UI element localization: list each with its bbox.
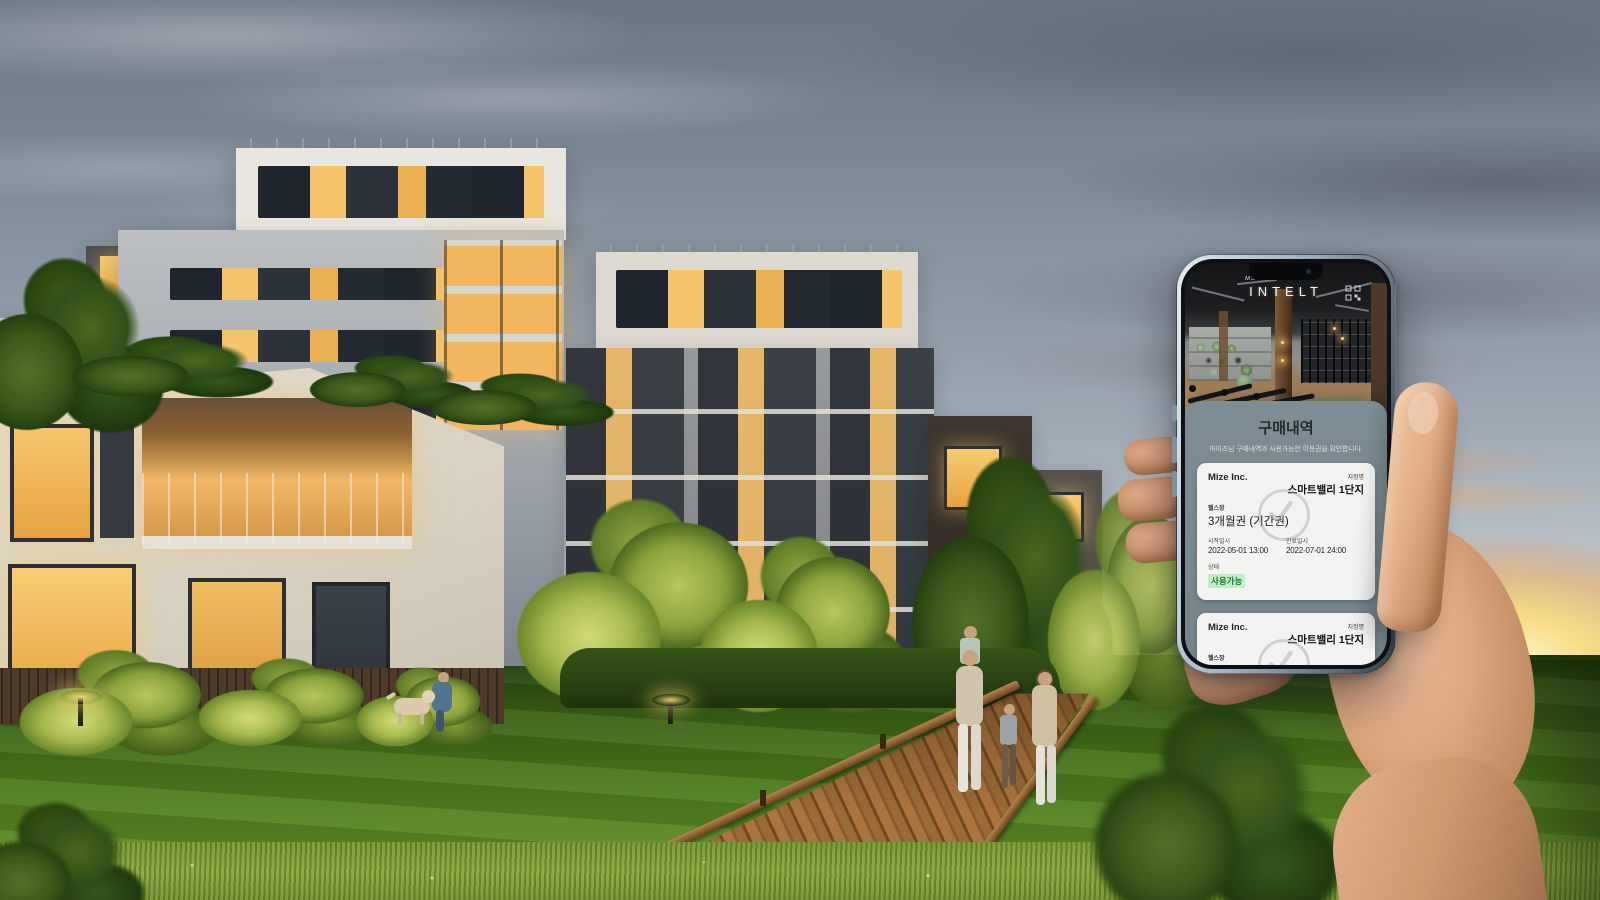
mother-leg	[1047, 745, 1056, 803]
boy-leg	[436, 710, 444, 732]
site-label: 지정명	[1288, 472, 1364, 481]
page-title: 구매내역	[1185, 417, 1387, 438]
wood-pillar	[1219, 311, 1228, 381]
dog-head	[422, 690, 435, 703]
family-group	[940, 620, 1070, 810]
pillar-light	[1281, 341, 1284, 344]
company-name: Mize Inc.	[1208, 472, 1248, 483]
father-head	[962, 650, 978, 666]
rowing-machine-wheel	[1253, 393, 1260, 400]
qr-code-icon[interactable]	[1345, 285, 1361, 301]
ticket-card-active[interactable]: Mize Inc. 지정명 스마트밸리 1단지 헬스장 3개월권 (기간권) 시…	[1197, 463, 1375, 600]
penthouse-window-band	[258, 166, 544, 218]
smartphone: MS INTELT 구매내역 마이즈님 구매내역과 사용가능한 이용권을 확인합…	[1176, 254, 1396, 674]
start-value: 2022-05-01 13:00	[1208, 546, 1286, 555]
dog-leg	[398, 713, 402, 725]
expiry-date-col: 만료일시 2022-07-01 24:00	[1286, 536, 1364, 555]
father-leg	[971, 724, 981, 790]
marketing-banner: MS INTELT 구매내역 마이즈님 구매내역과 사용가능한 이용권을 확인합…	[0, 0, 1600, 900]
mother-body	[1032, 685, 1057, 747]
ceiling-light-line	[1335, 304, 1369, 312]
wood-pillar	[1275, 289, 1292, 415]
light-bollard-glow	[60, 690, 102, 704]
father-leg	[958, 724, 968, 792]
ticket-list: Mize Inc. 지정명 스마트밸리 1단지 헬스장 3개월권 (기간권) 시…	[1197, 463, 1375, 665]
hanging-bulb	[1341, 337, 1344, 340]
boy-body	[432, 682, 452, 712]
father-body	[956, 666, 983, 726]
cream-window-lit	[10, 424, 94, 542]
page-subtitle: 마이즈님 구매내역과 사용가능한 이용권을 확인합니다.	[1185, 443, 1387, 453]
boy-with-dog	[376, 672, 466, 736]
status-badge: 사용가능	[1208, 574, 1245, 588]
hanging-bulb	[1333, 327, 1336, 330]
dog-leg	[420, 713, 424, 725]
dog-tail	[386, 692, 397, 700]
gym-photo: MS INTELT	[1185, 263, 1387, 415]
phone-screen[interactable]: MS INTELT 구매내역 마이즈님 구매내역과 사용가능한 이용권을 확인합…	[1185, 263, 1387, 665]
mother-leg	[1036, 745, 1045, 805]
right-top-window-band	[616, 270, 902, 328]
company-name: Mize Inc.	[1208, 622, 1248, 633]
balcony-railing	[142, 473, 412, 549]
volume-up-button	[1172, 437, 1177, 463]
status-label: 상태	[1208, 562, 1364, 571]
purchase-history-panel: 구매내역 마이즈님 구매내역과 사용가능한 이용권을 확인합니다. Mize I…	[1185, 401, 1387, 665]
expiry-value: 2022-07-01 24:00	[1286, 546, 1364, 555]
pillar-light	[1281, 359, 1284, 362]
foreground-tree-blurred	[1080, 680, 1350, 900]
mute-switch	[1172, 405, 1177, 421]
boardwalk-post	[880, 734, 886, 749]
boy-leg	[1010, 744, 1016, 786]
ticket-card-expired[interactable]: Mize Inc. 지정명 스마트밸리 1단지 헬스장 1개월권 (기간권) 시…	[1197, 613, 1375, 665]
rooftop-shrubs	[60, 330, 280, 400]
boardwalk-post	[760, 790, 766, 806]
volume-down-button	[1172, 471, 1177, 497]
foreground-bush	[0, 790, 150, 900]
boy-head	[1004, 704, 1015, 715]
rowing-machine-wheel	[1221, 389, 1228, 396]
gym-rack-wall	[1301, 319, 1373, 383]
exercise-balls	[1189, 327, 1271, 381]
boy-body	[1000, 715, 1017, 745]
rooftop-shrubs	[420, 368, 620, 428]
rowing-machine-wheel	[1189, 385, 1196, 392]
wood-pillar	[1371, 283, 1387, 415]
camera-dot	[1306, 269, 1311, 274]
thumbnail	[1406, 391, 1440, 435]
mother-head	[1038, 672, 1052, 686]
boy-leg	[1002, 744, 1008, 788]
notch	[1249, 263, 1323, 280]
light-bollard-glow	[652, 694, 690, 706]
expiry-label: 만료일시	[1286, 536, 1364, 545]
site-label: 지정명	[1288, 622, 1364, 631]
